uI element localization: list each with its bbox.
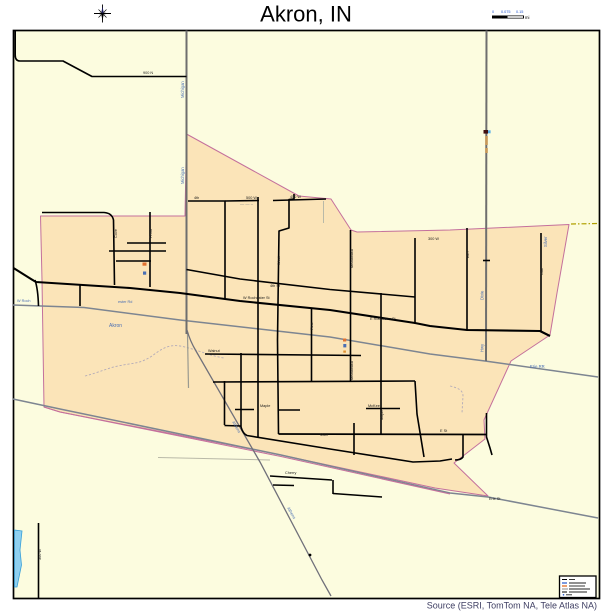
svg-text:Dixie: Dixie — [480, 290, 485, 300]
svg-text:mi: mi — [525, 15, 529, 20]
svg-text:West: West — [277, 255, 281, 265]
svg-text:Erie RR: Erie RR — [530, 364, 545, 369]
svg-text:Front: Front — [149, 228, 153, 238]
svg-text:Silver: Silver — [543, 236, 548, 247]
svg-text:4th St: 4th St — [270, 284, 281, 288]
svg-text:Akron: Akron — [109, 323, 122, 329]
svg-text:300 W: 300 W — [38, 549, 42, 560]
svg-text:Source (ESRI, TomTom NA, Tele: Source (ESRI, TomTom NA, Tele Atlas NA) — [427, 601, 597, 611]
svg-text:0.15: 0.15 — [516, 10, 523, 14]
svg-text:4th: 4th — [194, 196, 199, 200]
svg-text:McKee: McKee — [368, 404, 380, 408]
svg-text:Cove: Cove — [114, 229, 118, 238]
svg-text:500 W: 500 W — [246, 196, 257, 200]
svg-text:Michigan: Michigan — [180, 167, 185, 184]
svg-text:0: 0 — [492, 10, 494, 14]
svg-text:Akron, IN: Akron, IN — [260, 2, 352, 27]
svg-text:Maple: Maple — [260, 404, 270, 408]
svg-text:Oak: Oak — [540, 268, 544, 275]
svg-text:Mishawaka: Mishawaka — [350, 360, 354, 380]
svg-text:Elm: Elm — [466, 251, 470, 258]
svg-text:Erie St: Erie St — [489, 497, 501, 501]
svg-text:900 N: 900 N — [143, 71, 153, 75]
svg-text:Hwy: Hwy — [480, 343, 485, 352]
svg-text:W Rochester St: W Rochester St — [243, 296, 271, 300]
svg-text:Michigan: Michigan — [180, 81, 185, 98]
svg-text:E St: E St — [440, 429, 448, 433]
svg-text:Maple: Maple — [380, 410, 384, 420]
svg-text:ester Rd: ester Rd — [118, 300, 132, 304]
svg-text:W Roch: W Roch — [17, 299, 31, 303]
svg-text:450 W: 450 W — [290, 195, 301, 199]
svg-text:Cherry: Cherry — [285, 471, 296, 475]
svg-text:Walnut: Walnut — [208, 349, 221, 353]
svg-text:Main: Main — [320, 433, 328, 437]
svg-text:Mishawaka: Mishawaka — [350, 248, 354, 268]
svg-text:0.075: 0.075 — [501, 10, 511, 14]
svg-text:Pine: Pine — [310, 322, 314, 330]
svg-text:300 W: 300 W — [428, 237, 439, 241]
svg-text:E Rochester St: E Rochester St — [370, 317, 396, 321]
svg-text:— — –: — — – — [240, 202, 254, 207]
